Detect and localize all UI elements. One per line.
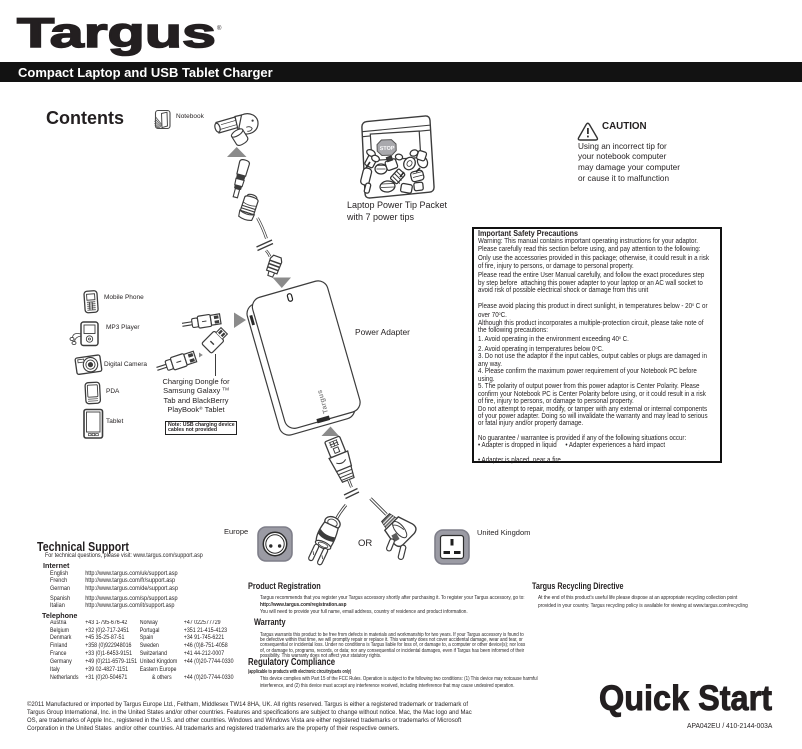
svg-text:STOP: STOP (380, 146, 395, 153)
